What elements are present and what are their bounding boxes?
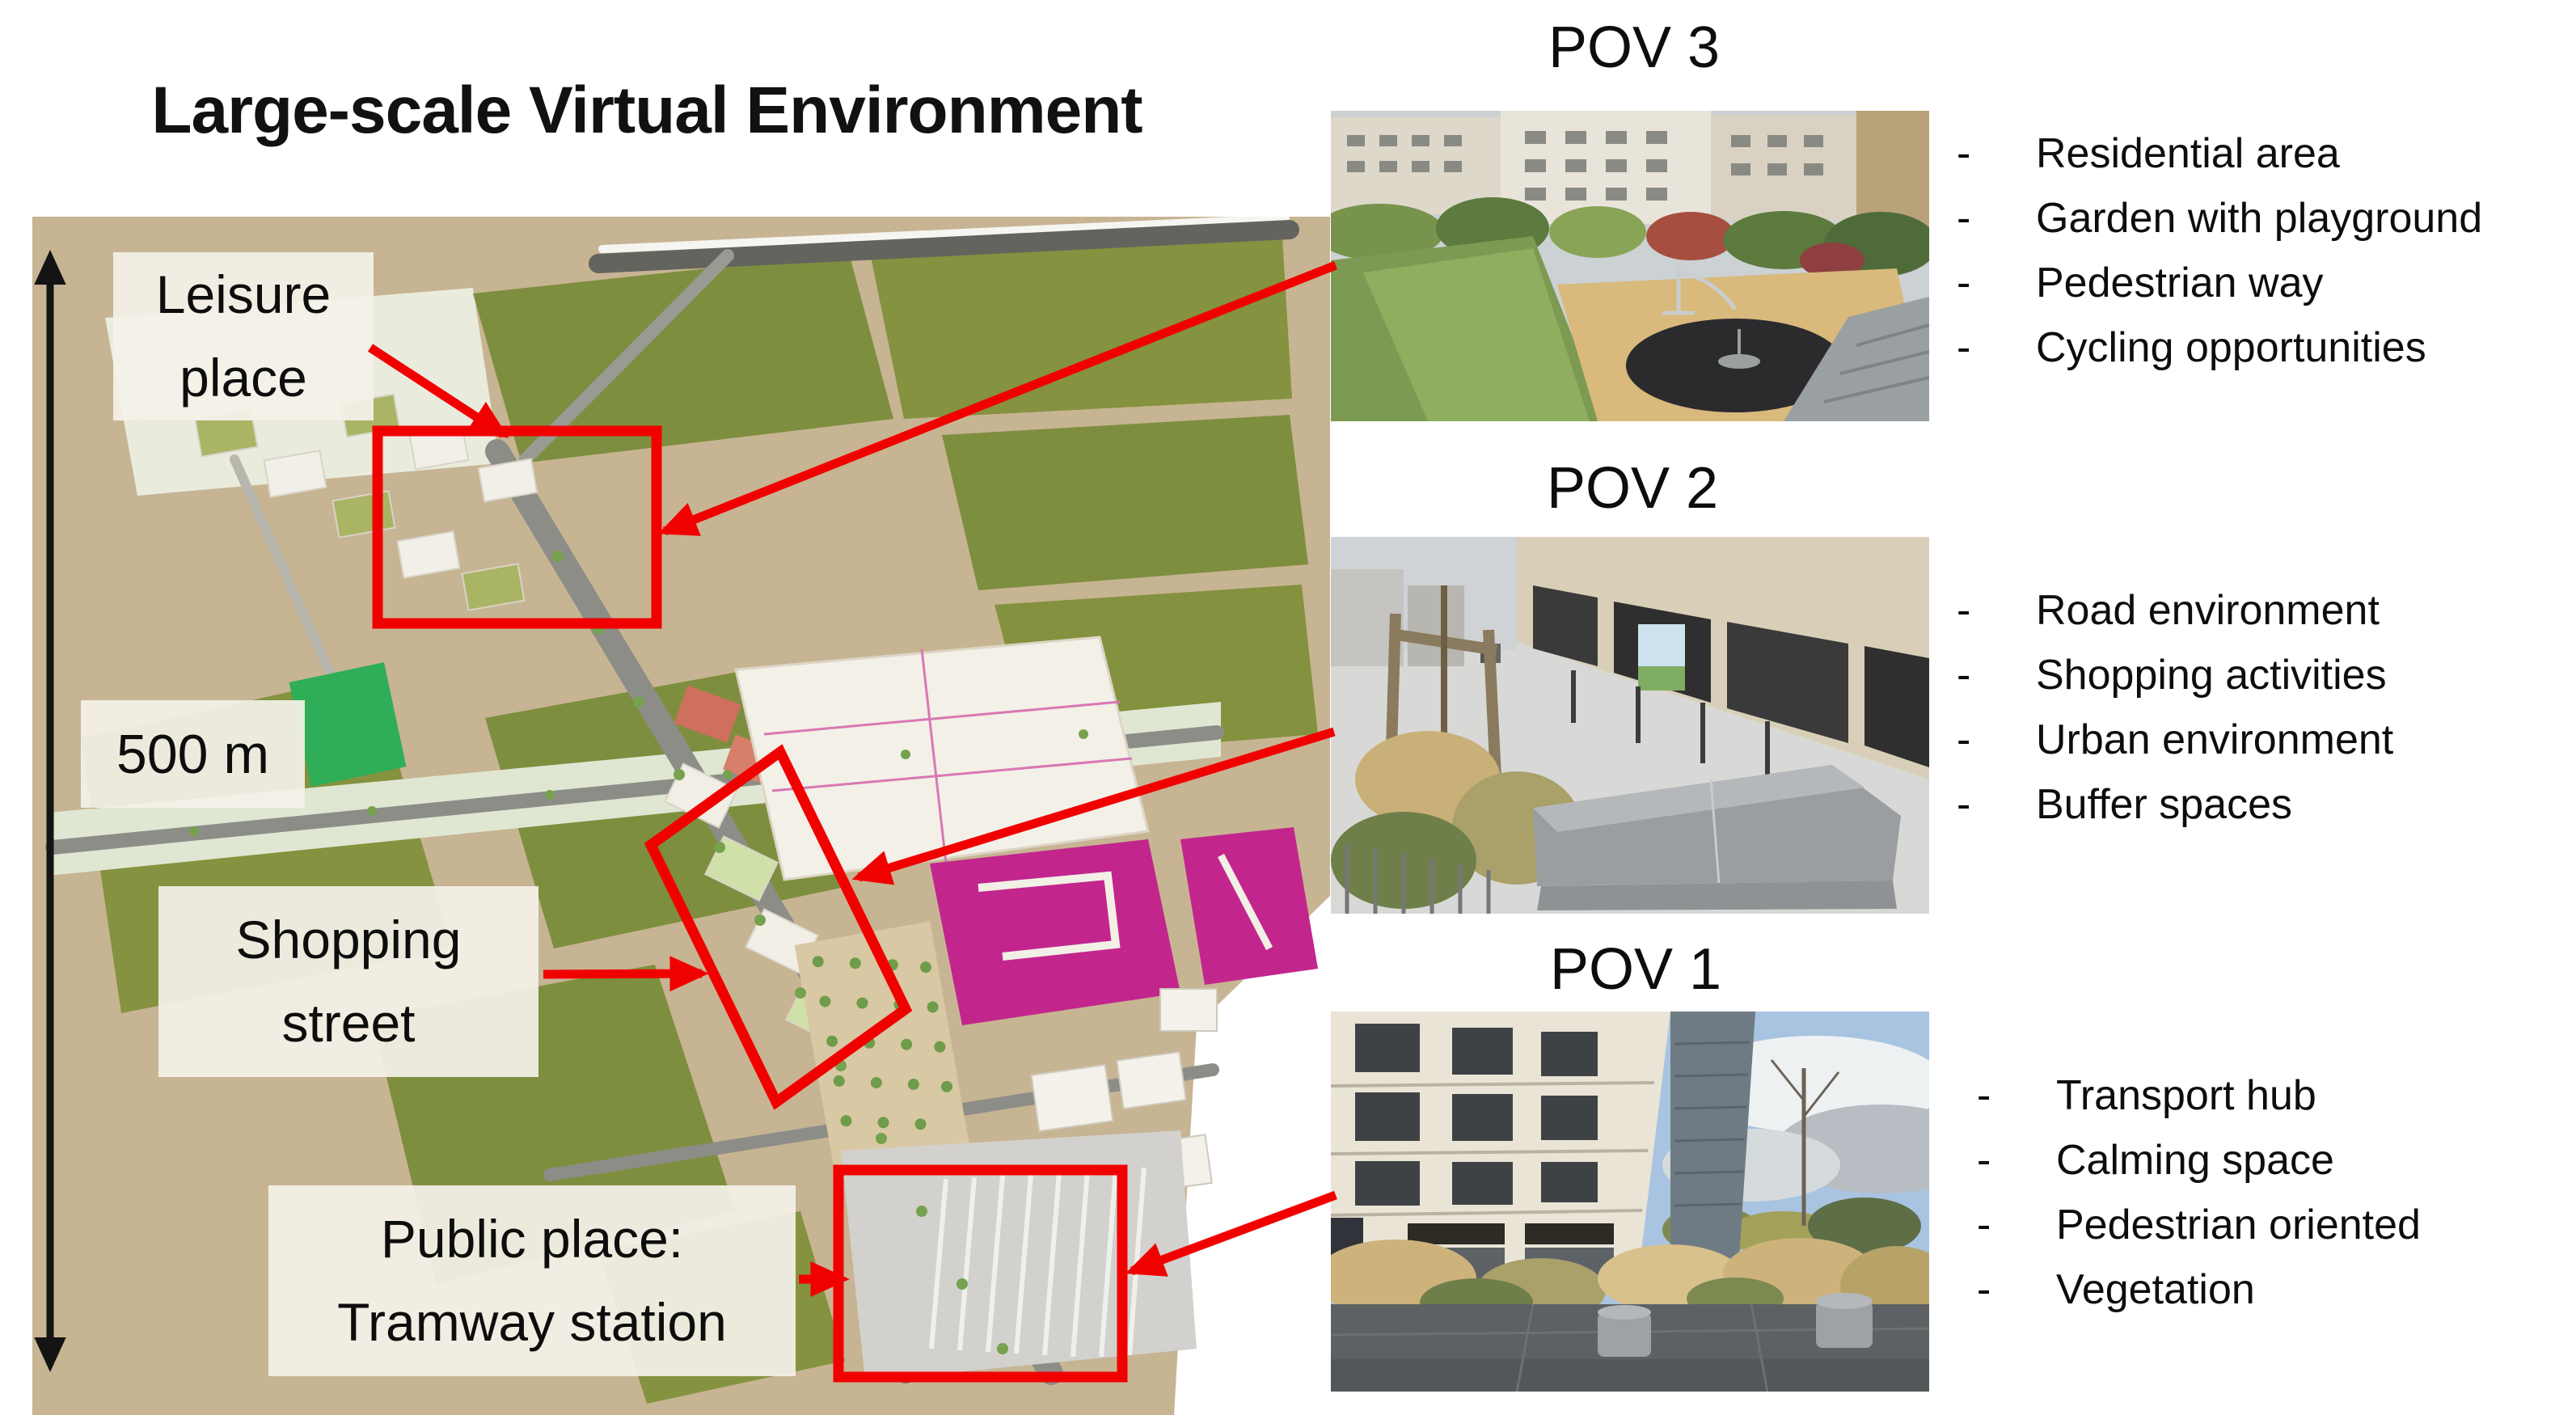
shopping-label-line2: street [158, 982, 538, 1065]
leisure-label-line1: Leisure [113, 253, 374, 336]
bullet-marker: - [1957, 586, 2036, 635]
bullet-text: Transport hub [2056, 1071, 2316, 1120]
bullet-text: Residential area [2036, 129, 2340, 178]
bullet-text: Garden with playground [2036, 194, 2482, 243]
list-item: -Vegetation [1977, 1257, 2421, 1322]
bullet-marker: - [1977, 1136, 2056, 1185]
bullet-marker: - [1957, 129, 2036, 178]
bullet-marker: - [1977, 1201, 2056, 1249]
list-item: -Calming space [1977, 1128, 2421, 1193]
bullet-text: Pedestrian way [2036, 259, 2324, 307]
bullet-text: Road environment [2036, 586, 2380, 635]
scale-label: 500 m [81, 700, 305, 808]
leisure-label-line2: place [113, 336, 374, 420]
map-magenta-buildings [930, 827, 1318, 1031]
bullet-text: Shopping activities [2036, 651, 2387, 699]
bullet-text: Calming space [2056, 1136, 2334, 1185]
figure-title: Large-scale Virtual Environment [121, 73, 1172, 149]
list-item: -Buffer spaces [1957, 772, 2393, 837]
pov1-bullet-list: -Transport hub -Calming space -Pedestria… [1977, 1063, 2421, 1322]
bullet-text: Urban environment [2036, 716, 2393, 764]
bullet-text: Pedestrian oriented [2056, 1201, 2421, 1249]
shopping-label-line1: Shopping [158, 898, 538, 982]
pov1-photo [1331, 1012, 1929, 1392]
public-place-label: Public place: Tramway station [268, 1185, 796, 1376]
pov2-title: POV 2 [1547, 455, 1718, 522]
bullet-text: Buffer spaces [2036, 780, 2292, 829]
public-label-line2: Tramway station [268, 1281, 796, 1364]
bullet-marker: - [1957, 323, 2036, 372]
list-item: -Pedestrian way [1957, 251, 2482, 315]
list-item: -Pedestrian oriented [1977, 1193, 2421, 1257]
list-item: -Garden with playground [1957, 186, 2482, 251]
list-item: -Residential area [1957, 121, 2482, 186]
scale-label-text: 500 m [81, 727, 305, 782]
pov2-photo [1331, 537, 1929, 914]
public-label-line1: Public place: [268, 1197, 796, 1281]
bullet-text: Vegetation [2056, 1265, 2255, 1314]
map-tram-plaza [841, 1130, 1197, 1381]
pov1-title: POV 1 [1550, 936, 1721, 1003]
list-item: -Transport hub [1977, 1063, 2421, 1128]
list-item: -Shopping activities [1957, 643, 2393, 707]
pov3-photo [1331, 111, 1929, 421]
bullet-text: Cycling opportunities [2036, 323, 2426, 372]
pov3-bullet-list: -Residential area -Garden with playgroun… [1957, 121, 2482, 380]
leisure-place-label: Leisure place [113, 252, 374, 420]
bullet-marker: - [1957, 651, 2036, 699]
list-item: -Road environment [1957, 578, 2393, 643]
bullet-marker: - [1977, 1265, 2056, 1314]
bullet-marker: - [1977, 1071, 2056, 1120]
list-item: -Cycling opportunities [1957, 315, 2482, 380]
bullet-marker: - [1957, 194, 2036, 243]
list-item: -Urban environment [1957, 707, 2393, 772]
shopping-street-label: Shopping street [158, 886, 538, 1077]
pov2-bullet-list: -Road environment -Shopping activities -… [1957, 578, 2393, 837]
pov3-title: POV 3 [1548, 15, 1720, 81]
bullet-marker: - [1957, 780, 2036, 829]
bullet-marker: - [1957, 716, 2036, 764]
bullet-marker: - [1957, 259, 2036, 307]
